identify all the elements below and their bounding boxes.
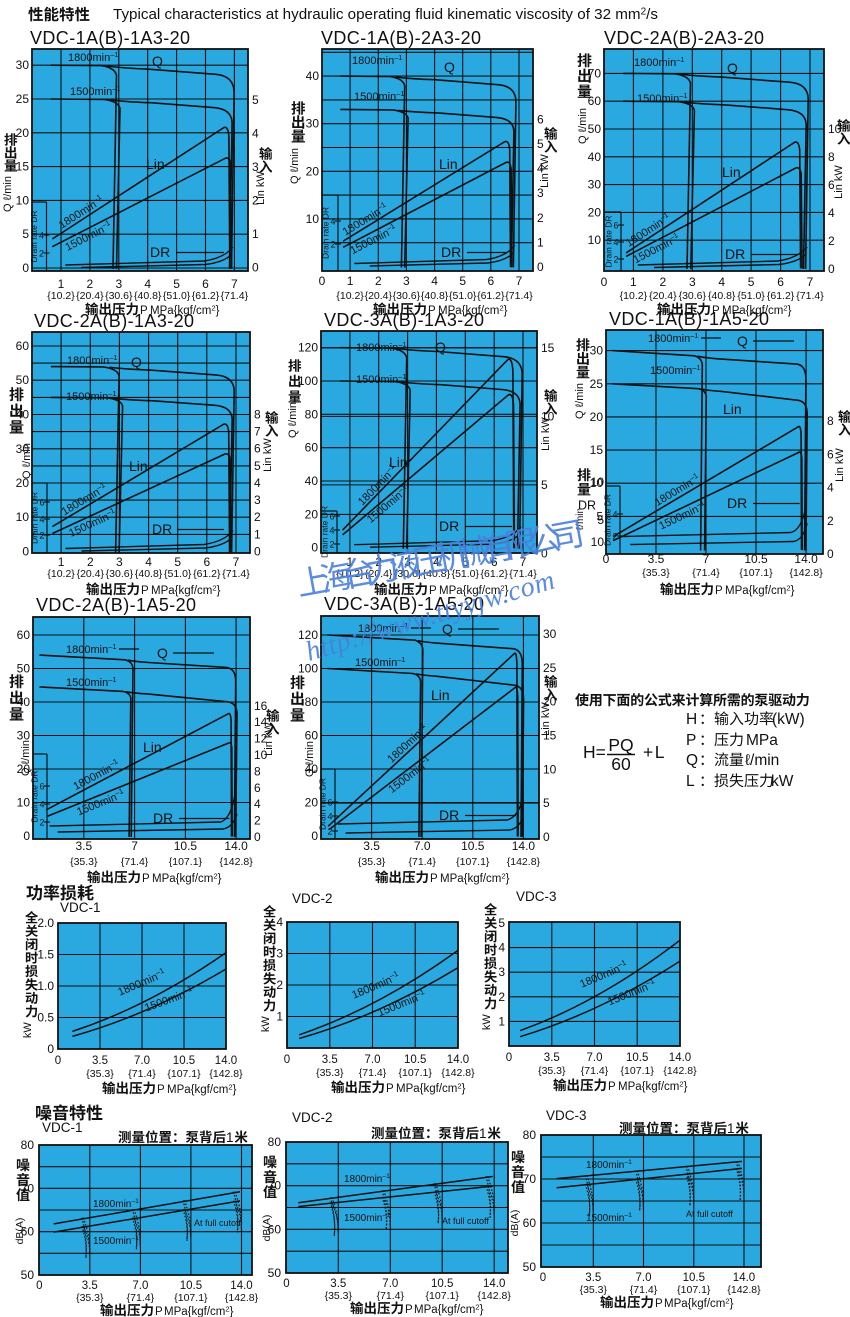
svg-text:7.0: 7.0: [134, 1055, 150, 1067]
svg-text:25: 25: [590, 377, 604, 391]
svg-text:0: 0: [284, 1054, 290, 1066]
svg-text:DR: DR: [153, 810, 173, 826]
svg-text:Lin: Lin: [146, 156, 165, 172]
svg-text:0: 0: [537, 260, 544, 274]
svg-text:4: 4: [39, 800, 44, 810]
svg-text:At full cutoff: At full cutoff: [442, 1216, 489, 1226]
svg-text:7: 7: [254, 425, 261, 439]
svg-text:Q: Q: [737, 333, 748, 349]
svg-text:{142.8}: {142.8}: [225, 1292, 259, 1304]
svg-text:4: 4: [613, 238, 618, 248]
svg-text:Lin: Lin: [143, 739, 162, 755]
svg-text:2: 2: [87, 277, 94, 291]
svg-text:8: 8: [254, 764, 261, 778]
svg-text:{142.8}: {142.8}: [507, 856, 541, 868]
svg-text:{142.8}: {142.8}: [219, 856, 253, 868]
svg-text:{71.4}: {71.4}: [127, 1292, 155, 1304]
svg-text:kW: kW: [481, 1014, 493, 1030]
svg-text:VDC-2A(B)-2A3-20: VDC-2A(B)-2A3-20: [604, 28, 764, 48]
svg-text:80: 80: [268, 1135, 282, 1149]
svg-text:30: 30: [588, 178, 602, 192]
svg-text:Q: Q: [444, 59, 455, 75]
svg-text:2: 2: [375, 274, 382, 288]
svg-text:5: 5: [498, 916, 505, 930]
svg-text:8: 8: [827, 414, 834, 428]
svg-text:Lin kW: Lin kW: [255, 171, 267, 205]
svg-text:15: 15: [590, 443, 604, 457]
svg-text:VDC-1A(B)-2A3-20: VDC-1A(B)-2A3-20: [321, 28, 481, 48]
svg-text:MPa{kgf/cm2}: MPa{kgf/cm2}: [167, 1083, 237, 1096]
svg-text:Q: Q: [435, 339, 446, 355]
svg-text:6: 6: [827, 447, 834, 461]
svg-text:2: 2: [612, 532, 617, 542]
svg-text:4: 4: [276, 915, 283, 929]
svg-text:6: 6: [329, 512, 334, 522]
svg-text:dB(A): dB(A): [509, 1210, 521, 1237]
svg-text:2: 2: [254, 510, 261, 524]
svg-text:Q ℓ/min: Q ℓ/min: [21, 443, 33, 479]
svg-text:10.5: 10.5: [431, 1278, 453, 1290]
svg-text:1: 1: [58, 277, 65, 291]
svg-text:7.0: 7.0: [132, 1280, 148, 1292]
svg-text:0: 0: [252, 261, 259, 275]
svg-text:MPa{kgf/cm2}: MPa{kgf/cm2}: [396, 1082, 466, 1095]
svg-text:60: 60: [305, 729, 319, 743]
svg-text:P: P: [405, 1304, 413, 1316]
svg-text:1: 1: [498, 1014, 505, 1028]
svg-text:0: 0: [828, 262, 835, 276]
svg-text:VDC-2: VDC-2: [292, 1110, 333, 1125]
svg-text:DR: DR: [152, 521, 172, 537]
svg-text:4: 4: [330, 217, 335, 227]
svg-text:DR: DR: [439, 807, 459, 823]
svg-text:4: 4: [327, 812, 332, 822]
svg-text:{71.4}: {71.4}: [359, 1067, 387, 1079]
svg-text:MPa: MPa: [746, 732, 778, 749]
svg-text:4: 4: [39, 515, 44, 525]
svg-text:6: 6: [537, 112, 544, 126]
svg-text:VDC-2: VDC-2: [292, 891, 333, 906]
svg-text:14.0: 14.0: [669, 1052, 691, 1064]
svg-text:10: 10: [588, 233, 602, 247]
svg-text:10.5: 10.5: [404, 1054, 426, 1066]
svg-text:3: 3: [254, 493, 261, 507]
svg-text:Q: Q: [157, 645, 168, 661]
svg-text:0: 0: [22, 261, 29, 275]
svg-text:40: 40: [306, 69, 320, 83]
svg-text:2: 2: [330, 240, 335, 250]
svg-text:{71.4}: {71.4}: [121, 856, 149, 868]
svg-text:{30.6}: {30.6}: [679, 290, 707, 302]
svg-text:2: 2: [537, 211, 544, 225]
svg-text:Lin: Lin: [723, 401, 742, 417]
svg-text:1: 1: [252, 227, 259, 241]
svg-text:10.5: 10.5: [174, 839, 198, 853]
svg-text:5: 5: [537, 137, 544, 151]
svg-text:20: 20: [305, 507, 319, 521]
svg-text:0: 0: [506, 1052, 512, 1064]
svg-text:{107.1}: {107.1}: [426, 1290, 460, 1302]
svg-text:6: 6: [203, 555, 210, 569]
svg-text:14.0: 14.0: [224, 839, 248, 853]
svg-text:Lin kW: Lin kW: [263, 722, 275, 756]
svg-text:70: 70: [523, 1172, 537, 1186]
svg-text:3.5: 3.5: [75, 839, 92, 853]
svg-text:3: 3: [115, 277, 122, 291]
svg-text:{107.1}: {107.1}: [169, 856, 203, 868]
svg-text:{107.1}: {107.1}: [174, 1292, 208, 1304]
svg-text:{71.4}: {71.4}: [408, 856, 436, 868]
svg-text:{107.1}: {107.1}: [677, 1284, 711, 1296]
svg-text:60: 60: [588, 94, 602, 108]
svg-text:5: 5: [174, 555, 181, 569]
svg-text:10: 10: [16, 510, 30, 524]
svg-text:Drain rate DR: Drain rate DR: [30, 492, 40, 544]
svg-text:7: 7: [231, 277, 238, 291]
svg-text:+L: +L: [643, 742, 666, 762]
svg-text:10.5: 10.5: [180, 1280, 202, 1292]
svg-text:7.0: 7.0: [382, 1278, 398, 1290]
svg-text:Lin: Lin: [129, 458, 148, 474]
svg-text:7.0: 7.0: [414, 839, 431, 853]
svg-text:Drain rate DR: Drain rate DR: [320, 506, 330, 558]
svg-text:{51.0}: {51.0}: [164, 568, 192, 580]
svg-text:20: 20: [305, 796, 319, 810]
svg-text:50: 50: [588, 122, 602, 136]
svg-text:Lin: Lin: [439, 156, 458, 172]
svg-text:6: 6: [254, 781, 261, 795]
svg-text:2: 2: [828, 234, 835, 248]
svg-text:0: 0: [540, 1272, 546, 1284]
svg-text:DR: DR: [727, 495, 747, 511]
svg-text:{71.4}: {71.4}: [796, 290, 824, 302]
svg-text:VDC-3: VDC-3: [546, 1108, 587, 1123]
svg-text:Drain rate DR: Drain rate DR: [318, 778, 328, 830]
svg-text:At full cutoff: At full cutoff: [686, 1209, 733, 1219]
svg-text:VDC-1A(B)-1A3-20: VDC-1A(B)-1A3-20: [30, 28, 190, 48]
svg-text:{10.2}: {10.2}: [336, 290, 364, 302]
svg-text:3.5: 3.5: [92, 1055, 108, 1067]
svg-text:Q: Q: [131, 354, 142, 370]
svg-text:10.5: 10.5: [173, 1055, 195, 1067]
svg-text:Lin kW: Lin kW: [540, 417, 552, 451]
svg-text:(kW): (kW): [772, 711, 805, 728]
svg-text:VDC-2A(B)-1A3-20: VDC-2A(B)-1A3-20: [34, 311, 194, 331]
svg-text:{61.2}: {61.2}: [193, 568, 221, 580]
svg-text:5: 5: [252, 93, 259, 107]
svg-text:20: 20: [590, 410, 604, 424]
svg-text:Drain rate DR: Drain rate DR: [603, 494, 613, 546]
svg-text:Lin kW: Lin kW: [262, 438, 274, 472]
svg-text:DR: DR: [441, 244, 461, 260]
svg-text:50: 50: [523, 1260, 537, 1274]
svg-text:3.5: 3.5: [363, 839, 380, 853]
svg-text:{35.3}: {35.3}: [86, 1068, 114, 1080]
svg-text:4: 4: [498, 941, 505, 955]
svg-text:P: P: [142, 873, 150, 885]
svg-text:Drain rate DR: Drain rate DR: [29, 211, 39, 263]
svg-text:Typical characteristics at hyd: Typical characteristics at hydraulic ope…: [113, 6, 658, 23]
svg-text:16: 16: [254, 699, 268, 713]
svg-text:{30.6}: {30.6}: [106, 568, 134, 580]
svg-text:10.5: 10.5: [461, 839, 485, 853]
svg-text:30: 30: [16, 58, 30, 72]
svg-text:DR: DR: [150, 244, 170, 260]
svg-text:4: 4: [431, 274, 438, 288]
svg-text:25: 25: [543, 661, 557, 675]
svg-text:{10.2}: {10.2}: [47, 568, 75, 580]
svg-text:4: 4: [254, 797, 261, 811]
svg-text:{51.0}: {51.0}: [737, 290, 765, 302]
svg-text:Q: Q: [686, 752, 698, 769]
svg-text:{51.0}: {51.0}: [449, 290, 477, 302]
svg-text:2: 2: [39, 818, 44, 828]
svg-text:30: 30: [306, 117, 320, 131]
svg-text:VDC-1A(B)-1A5-20: VDC-1A(B)-1A5-20: [609, 309, 769, 329]
svg-text:{71.4}: {71.4}: [630, 1284, 658, 1296]
svg-text:2: 2: [39, 249, 44, 259]
svg-text:100: 100: [298, 374, 318, 388]
svg-text:{20.4}: {20.4}: [77, 568, 105, 580]
svg-text:{51.0}: {51.0}: [452, 568, 480, 580]
svg-text:P: P: [608, 1081, 616, 1093]
svg-text:30: 30: [543, 627, 557, 641]
svg-text:0: 0: [254, 545, 261, 559]
svg-text:60: 60: [16, 339, 30, 353]
svg-text:50: 50: [268, 1266, 282, 1280]
svg-text:4: 4: [718, 275, 725, 289]
svg-text:4: 4: [612, 510, 617, 520]
svg-text:4: 4: [252, 127, 259, 141]
svg-text:{142.8}: {142.8}: [478, 1290, 512, 1302]
svg-text:{35.3}: {35.3}: [538, 1065, 566, 1077]
svg-text:DR: DR: [725, 246, 745, 262]
svg-text:{142.8}: {142.8}: [727, 1284, 761, 1296]
svg-text:3: 3: [689, 275, 696, 289]
svg-text:80: 80: [305, 695, 319, 709]
svg-text:60: 60: [611, 754, 631, 774]
svg-text:{10.2}: {10.2}: [47, 290, 75, 302]
svg-text:1: 1: [537, 235, 544, 249]
svg-text:14.0: 14.0: [794, 552, 818, 566]
svg-text:20: 20: [16, 126, 30, 140]
svg-text:{71.4}: {71.4}: [222, 568, 250, 580]
svg-text:VDC-2A(B)-1A5-20: VDC-2A(B)-1A5-20: [36, 595, 196, 615]
svg-text:3.5: 3.5: [82, 1280, 98, 1292]
svg-text:1: 1: [630, 275, 637, 289]
svg-text:6: 6: [39, 498, 44, 508]
svg-text:6: 6: [327, 798, 332, 808]
svg-text:8: 8: [254, 407, 261, 421]
svg-text:dB(A): dB(A): [14, 1218, 26, 1245]
svg-text:MPa{kgf/cm2}: MPa{kgf/cm2}: [664, 1297, 734, 1310]
svg-text:{35.3}: {35.3}: [316, 1067, 344, 1079]
svg-text:3.5: 3.5: [648, 552, 665, 566]
svg-text:7.0: 7.0: [587, 1052, 603, 1064]
svg-text:2: 2: [254, 814, 261, 828]
svg-text:4: 4: [144, 277, 151, 291]
svg-text:80: 80: [305, 407, 319, 421]
svg-text:25: 25: [16, 92, 30, 106]
svg-text:1: 1: [254, 527, 261, 541]
svg-text:14.0: 14.0: [447, 1054, 469, 1066]
svg-text:2: 2: [660, 275, 667, 289]
svg-text:Lin kW: Lin kW: [539, 154, 551, 188]
svg-text:kW: kW: [771, 773, 794, 790]
svg-text:{30.6}: {30.6}: [393, 290, 421, 302]
svg-text:P: P: [715, 585, 723, 597]
svg-text:4: 4: [827, 481, 834, 495]
svg-text:50: 50: [21, 1268, 35, 1282]
svg-text:{107.1}: {107.1}: [739, 567, 773, 579]
svg-text:{142.8}: {142.8}: [789, 567, 823, 579]
svg-text:3: 3: [403, 274, 410, 288]
svg-text:kW: kW: [260, 1016, 272, 1033]
svg-text:10: 10: [16, 193, 30, 207]
svg-text:2: 2: [276, 978, 283, 992]
svg-text:0: 0: [319, 274, 326, 288]
svg-text:0: 0: [543, 830, 550, 844]
svg-text:60: 60: [523, 1216, 537, 1230]
svg-text:60: 60: [17, 628, 31, 642]
svg-text:120: 120: [298, 341, 318, 355]
svg-text:{20.4}: {20.4}: [76, 290, 104, 302]
svg-text:Q ℓ/min: Q ℓ/min: [304, 741, 316, 777]
svg-text:10: 10: [543, 762, 557, 776]
svg-text:P: P: [155, 1306, 163, 1317]
svg-text:14.0: 14.0: [230, 1280, 252, 1292]
svg-text:1: 1: [479, 1126, 487, 1141]
svg-text:50: 50: [17, 662, 31, 676]
svg-text:60: 60: [305, 441, 319, 455]
svg-text:14.0: 14.0: [215, 1055, 237, 1067]
svg-text:8: 8: [828, 150, 835, 164]
svg-text:2: 2: [39, 531, 44, 541]
svg-text:4: 4: [254, 476, 261, 490]
svg-text:{35.3}: {35.3}: [358, 856, 386, 868]
svg-text:{30.6}: {30.6}: [105, 290, 133, 302]
svg-text:At full cutoff: At full cutoff: [194, 1218, 241, 1228]
svg-text:Drain rate DR: Drain rate DR: [604, 216, 614, 268]
svg-text:{71.4}: {71.4}: [377, 1290, 405, 1302]
svg-text:10: 10: [17, 796, 31, 810]
svg-text:3.5: 3.5: [585, 1272, 601, 1284]
svg-text:{35.3}: {35.3}: [76, 1292, 104, 1304]
svg-text:{142.8}: {142.8}: [441, 1067, 475, 1079]
svg-text:{20.4}: {20.4}: [649, 290, 677, 302]
svg-text:1: 1: [276, 1010, 283, 1024]
svg-text:1: 1: [347, 274, 354, 288]
svg-text:Q ℓ/min: Q ℓ/min: [287, 402, 299, 438]
svg-text:Drain rate DR: Drain rate DR: [30, 771, 40, 823]
svg-text:{71.4}: {71.4}: [581, 1065, 609, 1077]
svg-text:0: 0: [603, 552, 610, 566]
svg-text:{107.1}: {107.1}: [456, 856, 490, 868]
svg-text:0: 0: [47, 1042, 54, 1056]
svg-text:1: 1: [727, 1121, 735, 1136]
svg-text:0: 0: [22, 545, 29, 559]
svg-text:14.0: 14.0: [733, 1272, 755, 1284]
svg-text:2: 2: [498, 990, 505, 1004]
svg-text:Lin kW: Lin kW: [833, 165, 845, 199]
svg-text:2: 2: [827, 514, 834, 528]
svg-text:15: 15: [541, 341, 555, 355]
svg-text:{71.4}: {71.4}: [128, 1068, 156, 1080]
svg-text:Drain rate DR: Drain rate DR: [321, 207, 331, 259]
svg-text:1.0: 1.0: [37, 979, 54, 993]
svg-text:14.0: 14.0: [512, 839, 536, 853]
svg-text:{35.3}: {35.3}: [580, 1284, 608, 1296]
svg-text:MPa{kgf/cm2}: MPa{kgf/cm2}: [164, 1305, 234, 1317]
svg-text:0: 0: [283, 1278, 289, 1290]
svg-text:5: 5: [597, 513, 604, 527]
svg-text:kW: kW: [22, 1022, 34, 1039]
svg-text:VDC-1: VDC-1: [42, 1120, 83, 1135]
svg-text:6: 6: [487, 274, 494, 288]
svg-text:10.5: 10.5: [626, 1052, 648, 1064]
svg-text:{51.0}: {51.0}: [163, 290, 191, 302]
svg-text:Lin kW: Lin kW: [834, 448, 846, 482]
svg-text:5: 5: [543, 796, 550, 810]
svg-text:{142.8}: {142.8}: [209, 1068, 243, 1080]
svg-text:{61.2}: {61.2}: [477, 290, 505, 302]
svg-text:Q ℓ/min: Q ℓ/min: [2, 176, 14, 212]
svg-text:0: 0: [827, 547, 834, 561]
svg-text:7.0: 7.0: [365, 1054, 381, 1066]
svg-text:2: 2: [329, 540, 334, 550]
svg-text:4: 4: [39, 231, 44, 241]
svg-text:2: 2: [87, 555, 94, 569]
svg-text:4: 4: [145, 555, 152, 569]
svg-text:0: 0: [36, 1280, 42, 1292]
svg-text:{20.4}: {20.4}: [365, 290, 393, 302]
svg-text:P: P: [686, 732, 696, 749]
svg-text:H: H: [686, 711, 697, 728]
svg-text:Q ℓ/min: Q ℓ/min: [577, 108, 589, 144]
svg-text:{61.2}: {61.2}: [192, 290, 220, 302]
svg-text:Q ℓ/min: Q ℓ/min: [289, 148, 301, 184]
svg-text:VDC-3: VDC-3: [516, 889, 557, 904]
svg-text:dB(A): dB(A): [261, 1215, 273, 1242]
svg-text:MPa{kgf/cm2}: MPa{kgf/cm2}: [414, 1303, 484, 1316]
svg-text:10.5: 10.5: [683, 1272, 705, 1284]
svg-text:{71.4}: {71.4}: [505, 290, 533, 302]
svg-text:7.0: 7.0: [636, 1272, 652, 1284]
svg-text:Q: Q: [727, 60, 738, 76]
svg-text:5: 5: [254, 459, 261, 473]
svg-text:40: 40: [305, 474, 319, 488]
svg-text:{142.8}: {142.8}: [663, 1065, 697, 1077]
svg-text:{71.4}: {71.4}: [221, 290, 249, 302]
svg-text:7: 7: [703, 552, 710, 566]
svg-text:MPa{kgf/cm2}: MPa{kgf/cm2}: [152, 872, 222, 885]
svg-text:0: 0: [311, 829, 318, 843]
svg-text:7: 7: [807, 275, 814, 289]
svg-text:3: 3: [498, 965, 505, 979]
svg-text:P: P: [655, 1298, 663, 1310]
svg-text:Q ℓ/min: Q ℓ/min: [20, 740, 32, 776]
svg-text:ℓ/min: ℓ/min: [745, 752, 779, 769]
svg-text:20: 20: [588, 205, 602, 219]
svg-text:80: 80: [523, 1128, 537, 1142]
svg-text:1: 1: [58, 555, 65, 569]
svg-text:VDC-3A(B)-1A3-20: VDC-3A(B)-1A3-20: [324, 310, 484, 330]
svg-text:50: 50: [16, 373, 30, 387]
svg-text:MPa{kgf/cm2}: MPa{kgf/cm2}: [440, 872, 510, 885]
svg-text:6: 6: [777, 275, 784, 289]
svg-text:6: 6: [39, 782, 44, 792]
svg-text:3: 3: [276, 947, 283, 961]
